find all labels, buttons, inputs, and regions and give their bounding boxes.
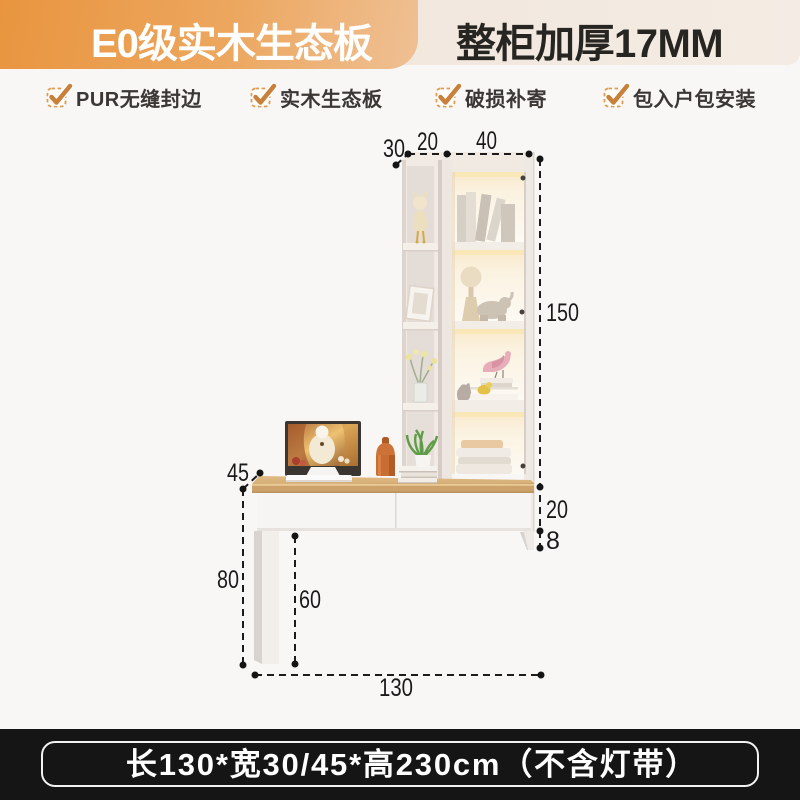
svg-text:150: 150 (546, 299, 579, 327)
svg-text:8: 8 (546, 527, 560, 555)
svg-text:40: 40 (476, 127, 497, 155)
svg-text:30: 30 (383, 135, 405, 163)
svg-text:60: 60 (299, 586, 321, 614)
svg-text:20: 20 (417, 128, 438, 156)
svg-text:45: 45 (227, 459, 249, 487)
svg-text:20: 20 (546, 496, 568, 524)
svg-text:80: 80 (217, 566, 239, 594)
svg-text:130: 130 (379, 674, 413, 702)
